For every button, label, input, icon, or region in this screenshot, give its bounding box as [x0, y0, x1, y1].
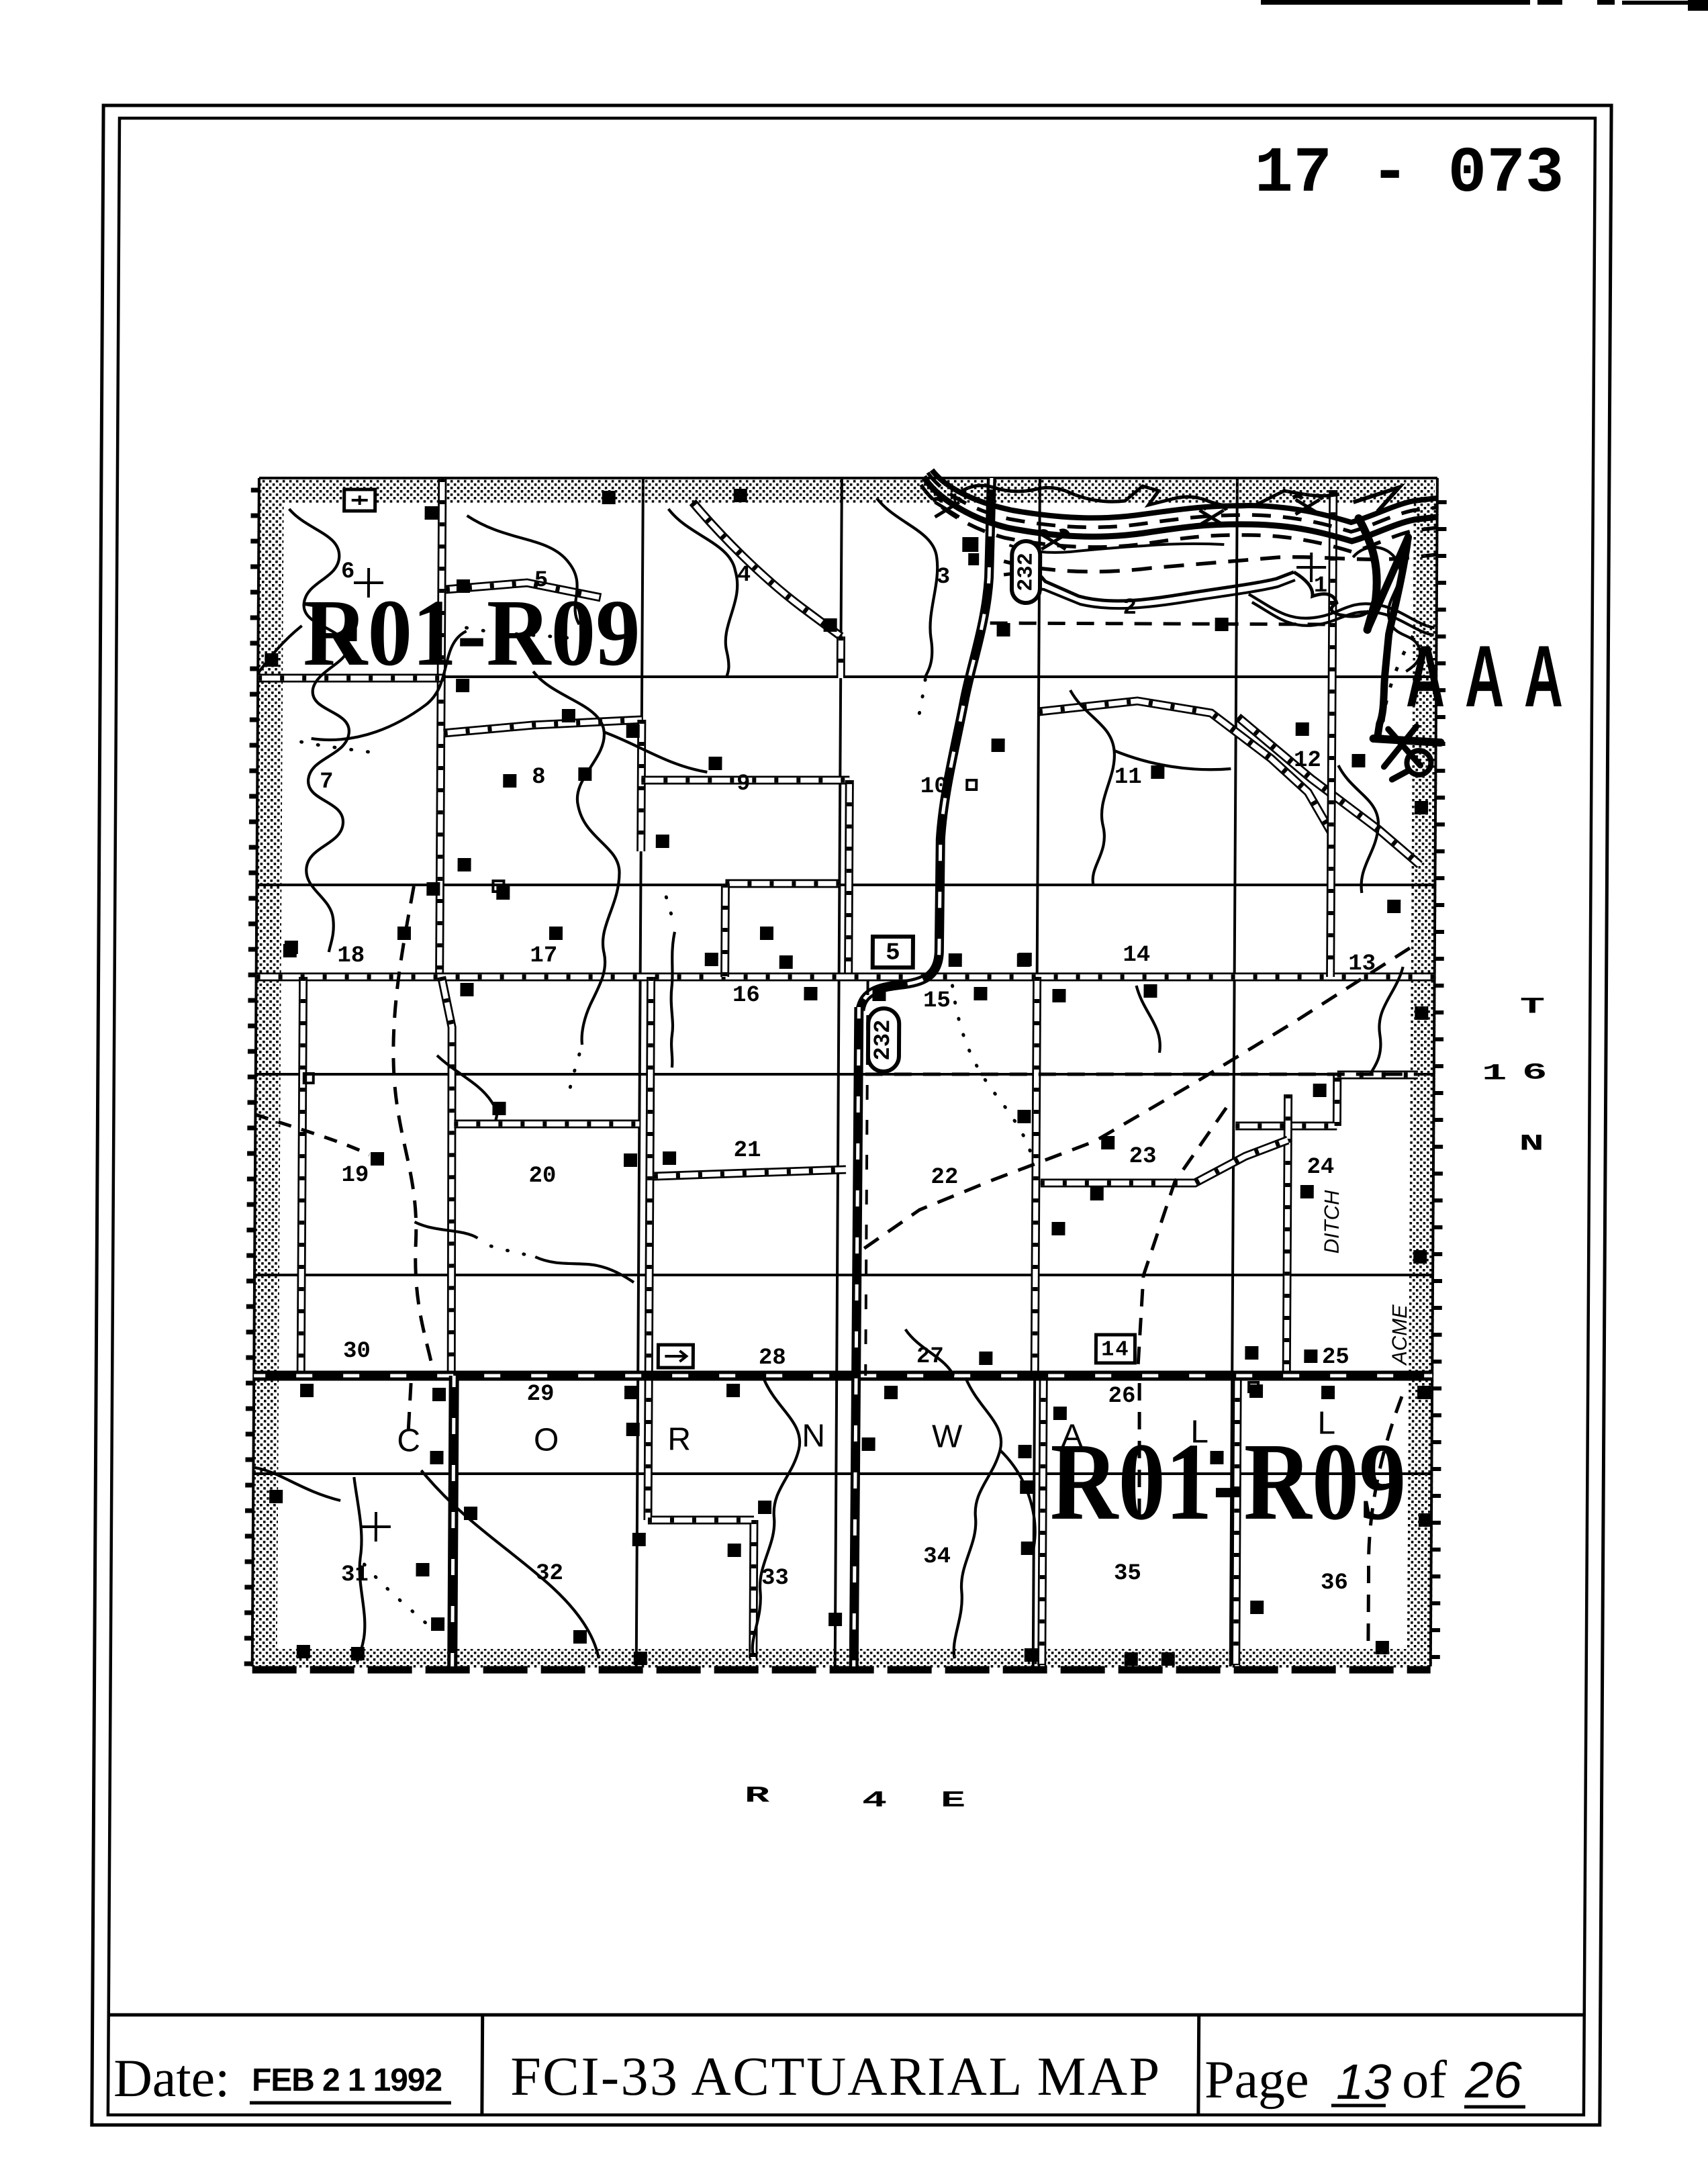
svg-text:1: 1	[1482, 1061, 1507, 1087]
svg-text:8: 8	[532, 765, 546, 790]
svg-text:DITCH: DITCH	[1320, 1190, 1344, 1253]
svg-text:N: N	[802, 1419, 825, 1454]
svg-text:24: 24	[1307, 1155, 1334, 1180]
svg-text:25: 25	[1322, 1345, 1349, 1370]
svg-text:28: 28	[759, 1345, 786, 1371]
svg-text:FCI-33 ACTUARIAL MAP: FCI-33 ACTUARIAL MAP	[510, 2046, 1160, 2107]
svg-text:18: 18	[337, 943, 365, 969]
svg-text:T: T	[1520, 994, 1545, 1021]
svg-text:Page: Page	[1204, 2050, 1309, 2110]
svg-text:10: 10	[920, 774, 948, 800]
svg-text:32: 32	[536, 1561, 563, 1587]
svg-text:34: 34	[923, 1544, 951, 1570]
svg-text:of: of	[1402, 2050, 1448, 2110]
svg-text:W: W	[932, 1419, 963, 1455]
svg-text:13: 13	[1336, 2054, 1392, 2110]
svg-text:27: 27	[916, 1344, 944, 1370]
svg-text:L: L	[1190, 1415, 1208, 1450]
svg-text:30: 30	[343, 1339, 371, 1364]
svg-text:35: 35	[1114, 1561, 1141, 1587]
svg-text:E: E	[941, 1788, 965, 1814]
svg-text:5: 5	[886, 939, 900, 967]
svg-text:9: 9	[737, 771, 751, 797]
svg-text:20: 20	[528, 1164, 556, 1189]
svg-text:14: 14	[1123, 943, 1150, 968]
svg-text:19: 19	[341, 1163, 369, 1188]
svg-text:ACME: ACME	[1388, 1305, 1412, 1366]
svg-text:R01-R09: R01-R09	[1050, 1420, 1407, 1543]
svg-text:232: 232	[871, 1019, 896, 1060]
svg-text:2: 2	[1123, 596, 1137, 621]
svg-text:R: R	[745, 1783, 769, 1809]
svg-text:31: 31	[341, 1562, 369, 1588]
svg-text:R01-R09: R01-R09	[303, 579, 640, 685]
svg-text:232: 232	[1013, 553, 1038, 592]
svg-text:17: 17	[530, 943, 557, 969]
svg-text:22: 22	[931, 1165, 958, 1190]
svg-text:L: L	[1317, 1406, 1335, 1441]
svg-text:1: 1	[1314, 573, 1328, 599]
svg-text:26: 26	[1464, 2052, 1523, 2109]
svg-text:C: C	[397, 1423, 420, 1459]
svg-text:3: 3	[937, 565, 951, 590]
svg-text:N: N	[1519, 1131, 1544, 1157]
svg-text:7: 7	[320, 769, 334, 795]
svg-text:16: 16	[732, 983, 760, 1008]
svg-text:4: 4	[737, 563, 751, 588]
svg-text:29: 29	[527, 1382, 555, 1407]
svg-text:21: 21	[734, 1138, 761, 1164]
svg-text:AAA: AAA	[1406, 627, 1584, 724]
svg-text:6: 6	[1522, 1060, 1547, 1086]
svg-text:O: O	[534, 1423, 559, 1458]
svg-text:17 - 073: 17 - 073	[1254, 137, 1564, 210]
svg-text:R: R	[667, 1422, 691, 1458]
svg-text:12: 12	[1294, 748, 1321, 773]
svg-text:4: 4	[862, 1788, 887, 1814]
svg-text:15: 15	[923, 988, 951, 1014]
svg-text:Date:: Date:	[113, 2049, 230, 2108]
svg-text:FEB 2 1 1992: FEB 2 1 1992	[252, 2063, 443, 2098]
svg-text:26: 26	[1108, 1384, 1136, 1409]
svg-text:A: A	[1061, 1419, 1083, 1454]
svg-text:14: 14	[1101, 1337, 1130, 1362]
svg-text:11: 11	[1114, 765, 1142, 790]
svg-text:23: 23	[1129, 1144, 1157, 1170]
svg-text:13: 13	[1348, 951, 1376, 977]
svg-text:33: 33	[761, 1566, 789, 1591]
svg-text:36: 36	[1321, 1570, 1348, 1596]
